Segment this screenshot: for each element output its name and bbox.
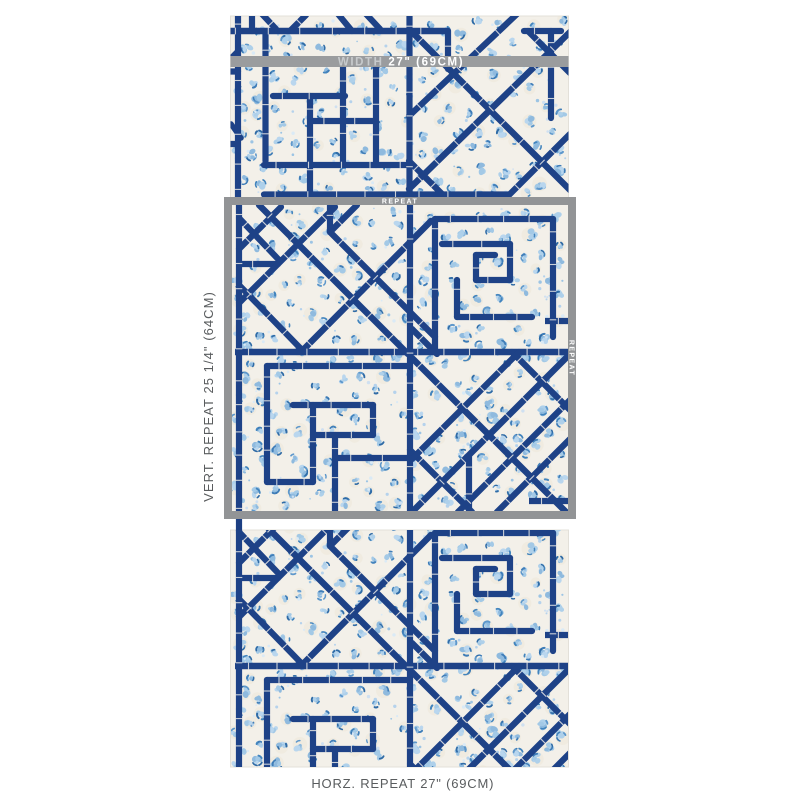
svg-text:HORZ. REPEAT 27" (69CM): HORZ. REPEAT 27" (69CM) — [311, 776, 494, 791]
svg-text:VERT. REPEAT 25 1/4" (64CM): VERT. REPEAT 25 1/4" (64CM) — [201, 291, 216, 502]
svg-text:REPEAT: REPEAT — [568, 340, 575, 376]
svg-text:WIDTH 27" (69CM): WIDTH 27" (69CM) — [338, 57, 464, 69]
svg-text:REPEAT: REPEAT — [382, 199, 418, 206]
